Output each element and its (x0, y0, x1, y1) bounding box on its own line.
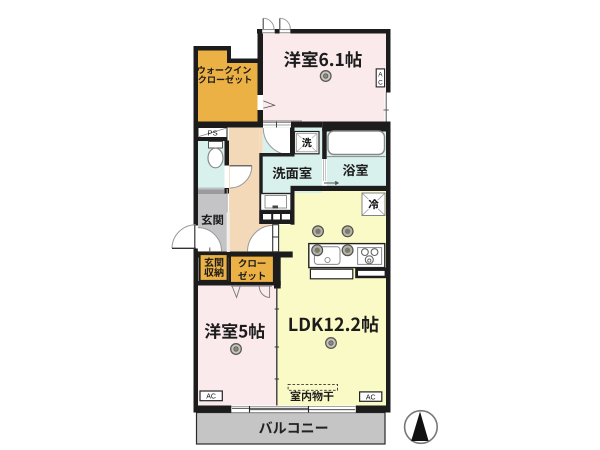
svg-text:C: C (378, 79, 383, 86)
svg-text:PS: PS (208, 128, 218, 137)
svg-text:AC: AC (206, 394, 216, 401)
svg-text:A: A (378, 71, 383, 78)
svg-text:AC: AC (366, 395, 376, 402)
